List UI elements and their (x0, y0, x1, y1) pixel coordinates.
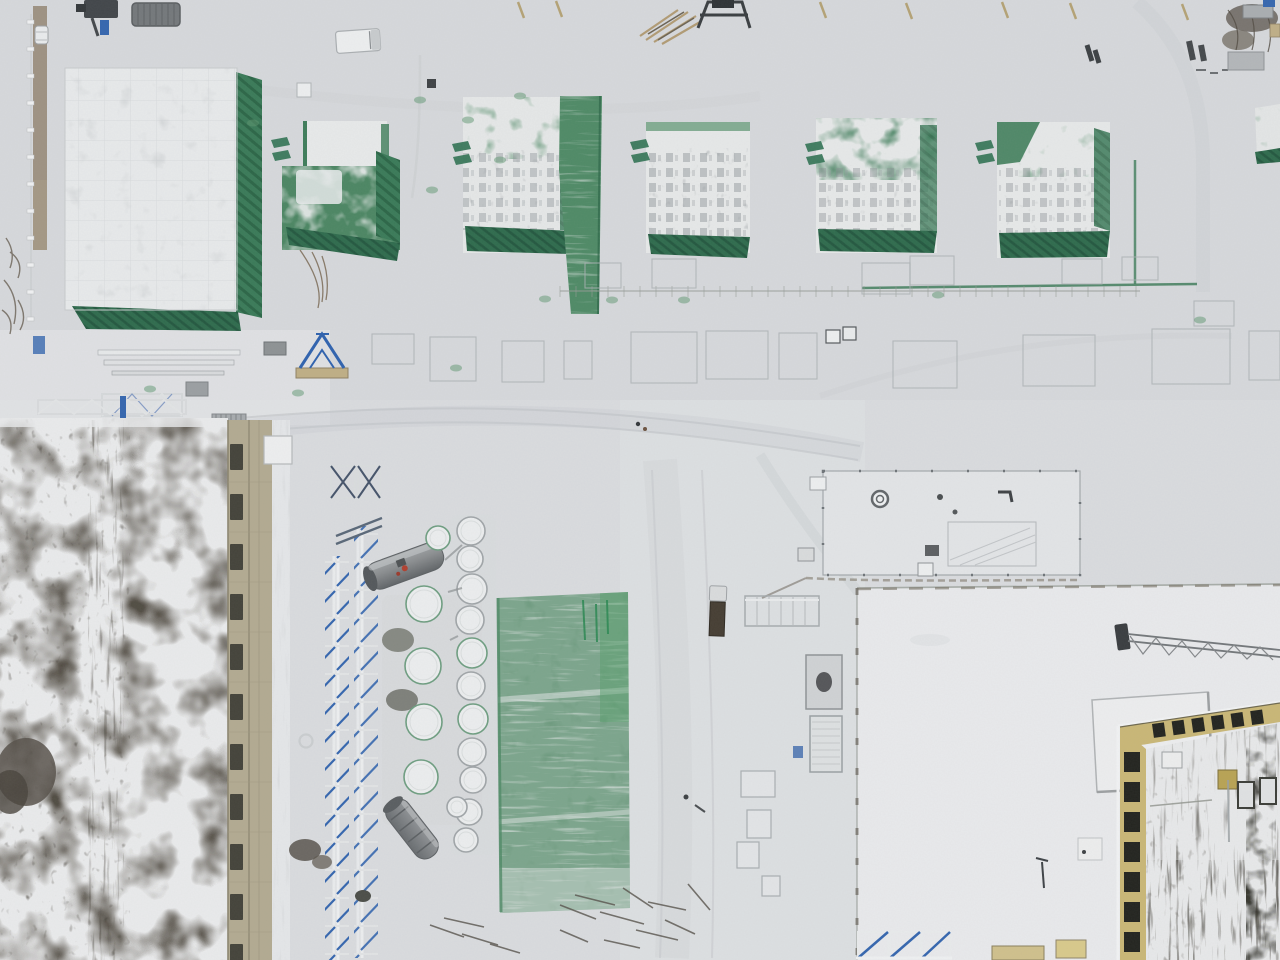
construction-site-aerial-photo (0, 0, 1280, 960)
photo-grain (0, 0, 1280, 960)
aerial-photo-stage (0, 0, 1280, 960)
